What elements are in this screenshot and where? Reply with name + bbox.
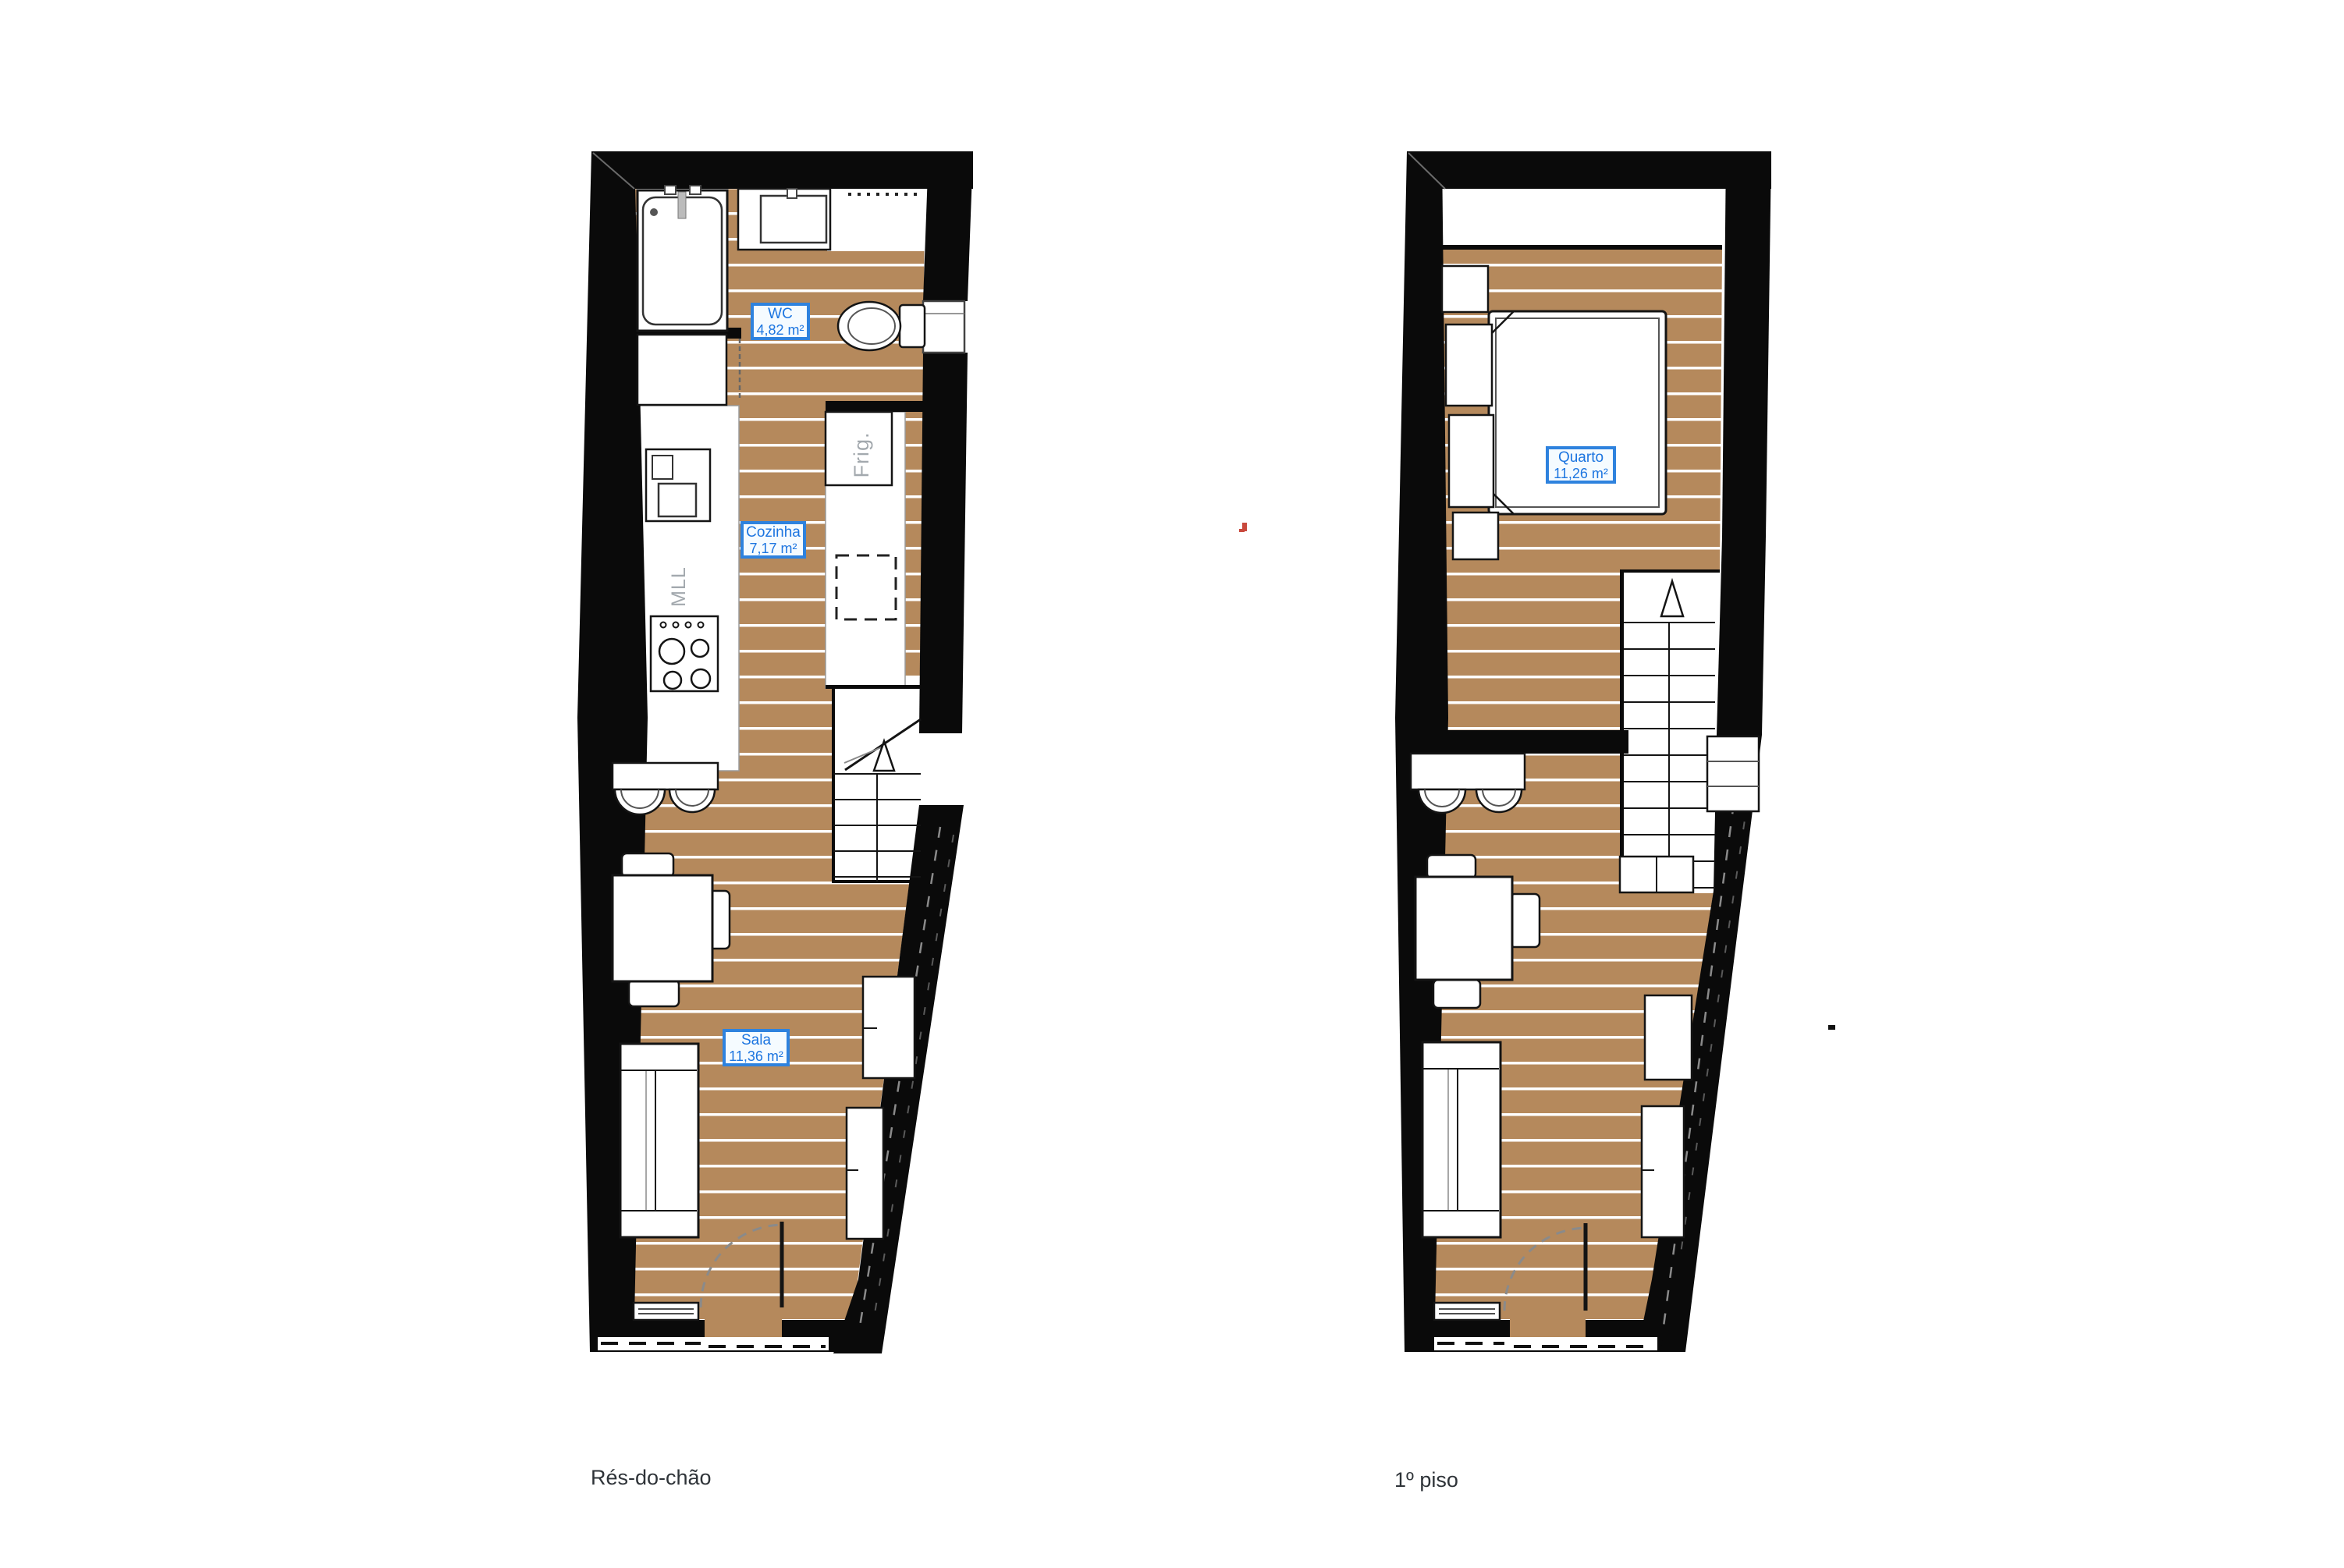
wall-stair-top [826,685,921,689]
room-label-cozinha: Cozinha 7,17 m² [740,521,806,559]
wall-stair-top-first [1620,569,1720,573]
sofa-ground [620,1044,698,1237]
fridge-label: Frig. [840,427,883,483]
wall-bedroom-divider [1444,730,1628,754]
sala-cabinet-upper [863,977,915,1078]
bedroom-top-recess [1442,189,1722,248]
toilet [838,301,964,353]
wall-top [591,151,973,189]
room-area: 4,82 m² [755,322,805,338]
wall-top-first [1407,151,1771,189]
washbasin [738,189,830,250]
caption-ground-floor: Rés-do-chão [591,1466,712,1490]
room-area: 11,26 m² [1550,466,1611,481]
room-area: 7,17 m² [745,541,801,556]
room-label-sala: Sala 11,36 m² [723,1029,790,1066]
wall-stair-left [832,685,835,883]
floor-plan-canvas [0,0,2344,1568]
bathtub [637,186,727,331]
caption-first-floor: 1º piso [1394,1468,1458,1492]
bed [1489,311,1666,514]
entry-opening-ground [705,1318,782,1339]
plan-first-floor [1395,151,1835,1352]
wardrobe-first [1645,995,1692,1080]
sala-cabinet-lower [847,1108,883,1239]
desk [1411,754,1525,789]
nightstand-1 [1446,325,1492,406]
doormat-ground [634,1303,698,1320]
future-appliance-dashed [836,555,896,619]
red-artifact [1239,523,1247,532]
black-artifact [1828,1025,1835,1030]
room-name: WC [755,307,805,322]
wall-right-mid [919,353,968,733]
floor-plan-page: WC 4,82 m² Cozinha 7,17 m² Sala 11,36 m²… [0,0,2344,1568]
stair-closet [1707,736,1759,811]
doormat-first [1434,1303,1500,1320]
dishwasher-label: MLL [657,559,701,615]
bar-counter [613,763,718,789]
sideboard-first [1620,857,1693,892]
entry-opening-first [1510,1318,1586,1339]
bedside-square [1442,266,1488,312]
bedroom-sill-line [1442,245,1722,250]
stove [651,616,718,691]
plan-ground-floor [577,151,1247,1353]
room-name: Sala [727,1033,785,1048]
wall-left-upper-first [1395,151,1448,718]
wall-right-mid-first [1717,537,1766,735]
room-name: Quarto [1550,450,1611,466]
room-name: Cozinha [745,525,801,541]
wall-right-upper [923,151,973,301]
kitchen-sink [646,449,710,521]
room-label-wc: WC 4,82 m² [751,303,810,340]
wall-wc-right [826,401,923,412]
nightstand-2 [1449,415,1493,507]
room-area: 11,36 m² [727,1048,785,1064]
wall-right-upper-first [1722,151,1771,537]
tall-unit-first [1642,1106,1684,1237]
wc-cabinet [637,335,726,405]
wc-top-recess [827,189,925,251]
nightstand-3 [1453,513,1498,559]
wall-stair-left-first [1620,572,1624,893]
sofa-first [1422,1042,1501,1237]
room-label-quarto: Quarto 11,26 m² [1546,446,1616,484]
